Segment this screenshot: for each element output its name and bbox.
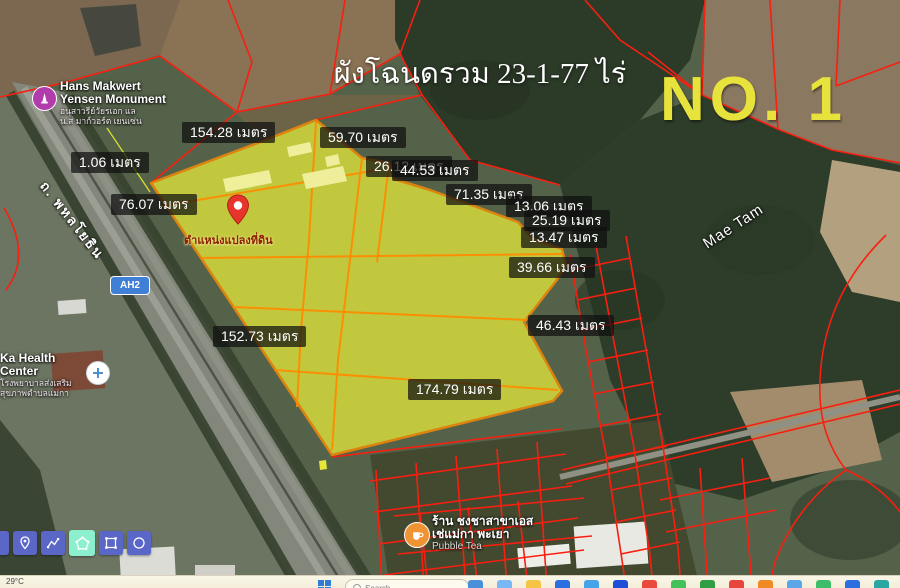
weather-temperature[interactable]: 29°C (6, 577, 24, 586)
taskbar-apps (468, 580, 889, 588)
draw-toolbar (0, 530, 151, 556)
taskbar-app-icon[interactable] (816, 580, 831, 588)
polyline-tool-button[interactable] (41, 531, 65, 555)
rectangle-tool-button[interactable] (99, 531, 123, 555)
marker-tool-button[interactable] (13, 531, 37, 555)
taskbar-app-icon[interactable] (729, 580, 744, 588)
polyline-icon (46, 536, 60, 550)
taskbar-app-icon[interactable] (555, 580, 570, 588)
taskbar-app-icon[interactable] (700, 580, 715, 588)
windows-start-icon[interactable] (318, 580, 331, 588)
taskbar: 29°C Search (0, 575, 900, 588)
polygon-tool-button[interactable] (69, 530, 95, 556)
tool-button-partial[interactable] (0, 531, 9, 555)
search-icon (353, 584, 361, 588)
taskbar-app-icon[interactable] (642, 580, 657, 588)
taskbar-app-icon[interactable] (468, 580, 483, 588)
taskbar-app-icon[interactable] (787, 580, 802, 588)
taskbar-app-icon[interactable] (613, 580, 628, 588)
taskbar-app-icon[interactable] (497, 580, 512, 588)
taskbar-app-icon[interactable] (526, 580, 541, 588)
taskbar-app-icon[interactable] (758, 580, 773, 588)
route-badge-ah2: AH2 (110, 276, 150, 295)
taskbar-app-icon[interactable] (671, 580, 686, 588)
search-label: Search (365, 584, 390, 588)
rectangle-icon (104, 536, 118, 550)
polygon-icon (75, 536, 90, 551)
circle-tool-button[interactable] (127, 531, 151, 555)
taskbar-search[interactable]: Search (345, 579, 469, 588)
marker-icon (18, 536, 32, 550)
taskbar-app-icon[interactable] (584, 580, 599, 588)
desktop-screenshot: ผังโฉนดรวม 23-1-77 ไร่ NO. 1 154.28 เมตร… (0, 0, 900, 588)
taskbar-app-icon[interactable] (874, 580, 889, 588)
circle-icon (132, 536, 146, 550)
taskbar-app-icon[interactable] (845, 580, 860, 588)
